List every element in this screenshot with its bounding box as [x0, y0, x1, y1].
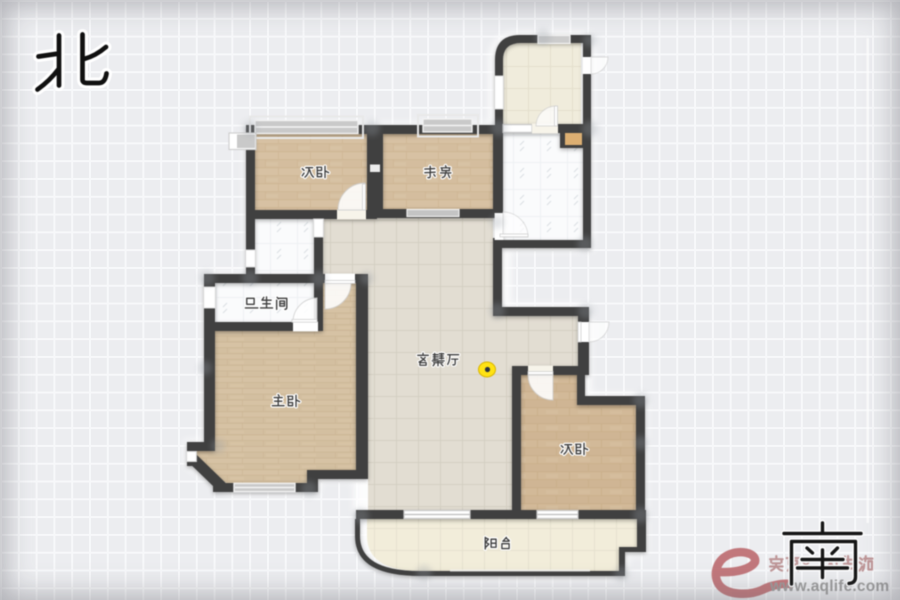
svg-text:www.aqlife.com: www.aqlife.com — [769, 578, 889, 595]
